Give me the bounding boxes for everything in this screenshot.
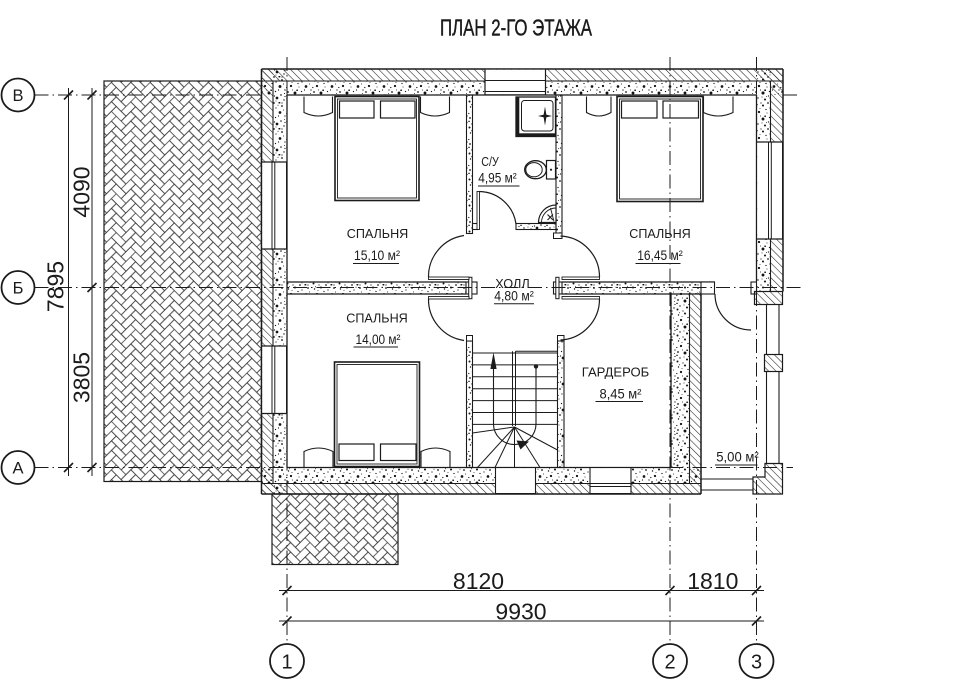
svg-text:СПАЛЬНЯ: СПАЛЬНЯ (346, 311, 408, 326)
svg-text:А: А (12, 459, 23, 477)
svg-text:8,45 м²: 8,45 м² (600, 387, 642, 402)
svg-text:Б: Б (13, 279, 24, 297)
svg-text:С/У: С/У (481, 154, 499, 169)
svg-text:14,00 м²: 14,00 м² (356, 332, 401, 347)
svg-text:ГАРДЕРОБ: ГАРДЕРОБ (582, 365, 650, 380)
svg-text:4,95 м²: 4,95 м² (478, 171, 517, 186)
svg-text:СПАЛЬНЯ: СПАЛЬНЯ (347, 226, 409, 241)
svg-text:2: 2 (664, 651, 675, 673)
svg-text:16,45 м²: 16,45 м² (637, 248, 683, 263)
svg-text:СПАЛЬНЯ: СПАЛЬНЯ (629, 226, 691, 241)
svg-text:4090: 4090 (69, 166, 95, 217)
svg-text:15,10 м²: 15,10 м² (354, 248, 400, 263)
svg-text:3805: 3805 (69, 352, 95, 403)
svg-text:4,80 м²: 4,80 м² (494, 288, 534, 303)
svg-text:5,00 м²: 5,00 м² (716, 450, 759, 465)
svg-text:9930: 9930 (495, 598, 546, 624)
svg-text:ПЛАН 2-ГО ЭТАЖА: ПЛАН 2-ГО ЭТАЖА (440, 15, 592, 41)
svg-text:7895: 7895 (43, 261, 69, 312)
svg-text:1: 1 (281, 651, 292, 673)
svg-text:3: 3 (751, 651, 762, 673)
svg-text:8120: 8120 (453, 568, 504, 594)
svg-text:1810: 1810 (687, 568, 738, 594)
svg-text:В: В (12, 87, 23, 105)
